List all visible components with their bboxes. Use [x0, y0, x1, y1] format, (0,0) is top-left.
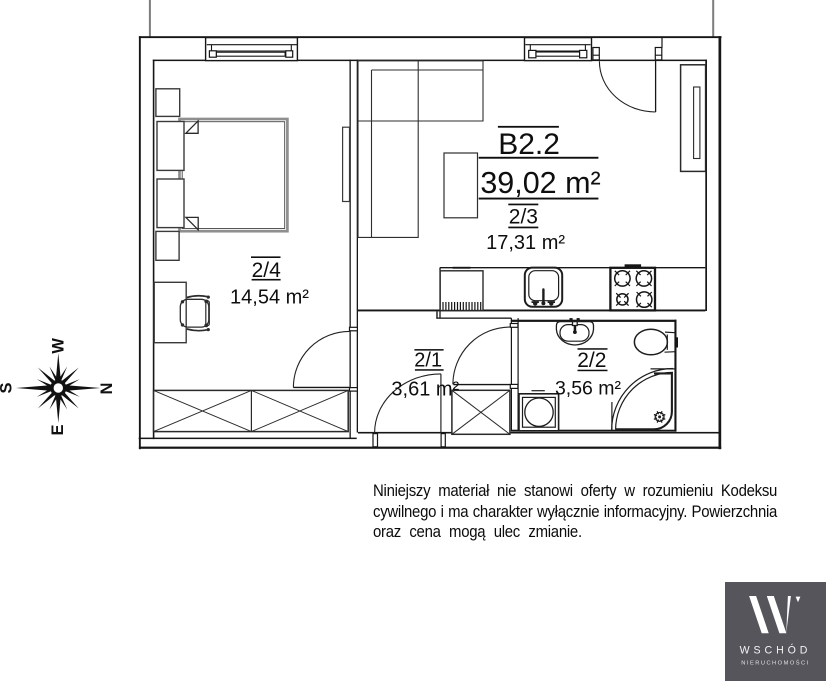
- svg-text:3,61 m²: 3,61 m²: [391, 378, 459, 400]
- svg-text:WSCHÓD: WSCHÓD: [740, 644, 812, 657]
- svg-text:39,02 m²: 39,02 m²: [480, 166, 600, 200]
- svg-text:N: N: [98, 383, 116, 395]
- svg-text:B2.2: B2.2: [498, 128, 560, 161]
- svg-text:W: W: [50, 338, 68, 354]
- svg-text:17,31 m²: 17,31 m²: [486, 232, 565, 254]
- svg-text:E: E: [49, 424, 67, 435]
- svg-text:NIERUCHOMOŚCI: NIERUCHOMOŚCI: [741, 658, 809, 666]
- svg-text:2/2: 2/2: [577, 349, 606, 372]
- svg-text:2/3: 2/3: [509, 206, 538, 229]
- svg-text:S: S: [0, 382, 16, 393]
- svg-text:2/1: 2/1: [414, 350, 442, 372]
- svg-text:14,54 m²: 14,54 m²: [230, 287, 309, 309]
- svg-text:2/4: 2/4: [252, 259, 282, 282]
- svg-text:3,56 m²: 3,56 m²: [555, 378, 622, 400]
